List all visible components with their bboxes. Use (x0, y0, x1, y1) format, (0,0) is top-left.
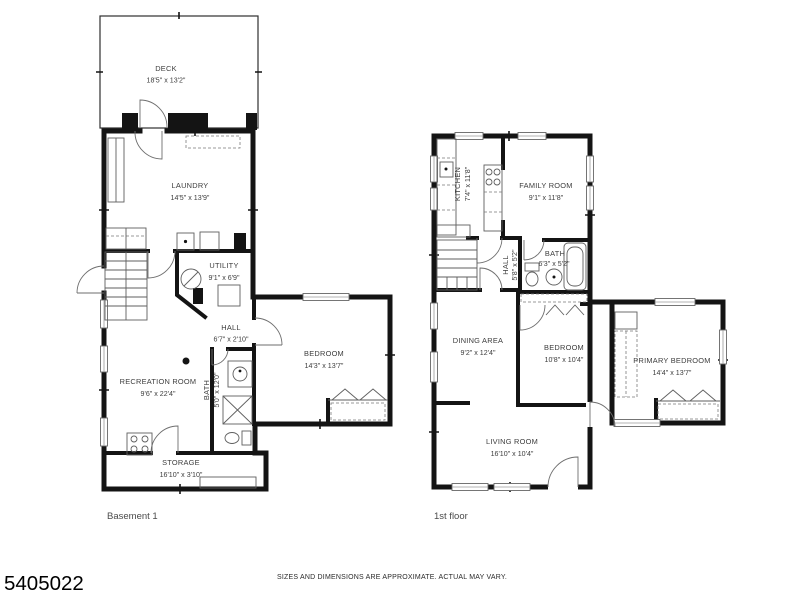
room-label-bath-first: BATH 6'3" x 5'2" (538, 249, 569, 268)
room-dims: 9'1" x 6'9" (208, 274, 239, 282)
washer-dryer-icon (106, 228, 146, 249)
room-dims: 9'2" x 12'4" (461, 349, 496, 357)
room-name: RECREATION ROOM (120, 377, 197, 386)
deck-outline (96, 12, 262, 130)
room-name: DINING AREA (453, 336, 503, 345)
bedroom-closet (521, 294, 587, 315)
basement-bedroom-closet (328, 389, 388, 420)
room-name: BATH (545, 249, 565, 258)
room-dims: 14'3" x 13'7" (305, 362, 344, 370)
primary-closets (615, 312, 720, 419)
room-label-bedroom-basement: BEDROOM 14'3" x 13'7" (304, 349, 344, 370)
room-label-kitchen: KITCHEN 7'4" x 11'8" (453, 166, 472, 201)
room-label-bedroom-first: BEDROOM 10'8" x 10'4" (544, 343, 584, 364)
room-dims: 6'7" x 2'10" (214, 336, 249, 344)
room-label-deck: DECK 18'5" x 13'2" (147, 64, 186, 85)
room-dims: 7'4" x 11'8" (464, 166, 472, 201)
room-name: BEDROOM (304, 349, 344, 358)
stairs-icon (105, 252, 147, 320)
kitchen-stove-icon (484, 165, 502, 231)
support-post-icon (183, 358, 190, 365)
room-dims: 14'4" x 13'7" (653, 369, 692, 377)
room-label-utility: UTILITY 9'1" x 6'9" (208, 261, 239, 282)
room-name: HALL (501, 255, 510, 275)
room-label-living: LIVING ROOM 16'10" x 10'4" (486, 437, 538, 458)
room-name: LAUNDRY (172, 181, 209, 190)
floorplan-page: DECK 18'5" x 13'2" LAUNDRY 14'5" x 13'9"… (0, 0, 800, 600)
room-dims: 6'3" x 5'2" (538, 260, 569, 268)
room-name: STORAGE (162, 458, 200, 467)
room-dims: 16'10" x 3'10" (160, 471, 203, 479)
basement-walls (99, 126, 395, 494)
first-floor-door-gaps (548, 402, 594, 491)
room-name: FAMILY ROOM (519, 181, 572, 190)
laundry-cabinet (108, 136, 240, 202)
room-dims: 9'1" x 11'8" (529, 194, 564, 202)
bath-sink-icon (546, 269, 562, 285)
room-label-recreation: RECREATION ROOM 9'6" x 22'4" (120, 377, 197, 398)
listing-id: 5405022 (4, 572, 84, 596)
room-name: UTILITY (209, 261, 238, 270)
room-dims: 10'8" x 10'4" (545, 356, 584, 364)
kitchen-sink-icon (440, 162, 453, 177)
room-label-primary: PRIMARY BEDROOM 14'4" x 13'7" (633, 356, 710, 377)
room-dims: 14'5" x 13'9" (171, 194, 210, 202)
room-name: HALL (221, 323, 241, 332)
basement-bath-fixtures (223, 361, 252, 445)
room-dims: 9'6" x 22'4" (141, 390, 176, 398)
floorplan-canvas: DECK 18'5" x 13'2" LAUNDRY 14'5" x 13'9"… (0, 0, 800, 600)
room-dims: 18'5" x 13'2" (147, 77, 186, 85)
bath-toilet-icon (525, 263, 539, 286)
room-name: LIVING ROOM (486, 437, 538, 446)
room-label-dining: DINING AREA 9'2" x 12'4" (453, 336, 503, 357)
room-dims: 5'0" x 12'0" (213, 372, 221, 407)
room-label-family: FAMILY ROOM 9'1" x 11'8" (519, 181, 572, 202)
first-floor-plan: KITCHEN 7'4" x 11'8" FAMILY ROOM 9'1" x … (429, 131, 728, 492)
room-label-laundry: LAUNDRY 14'5" x 13'9" (171, 181, 210, 202)
room-name: DECK (155, 64, 177, 73)
first-floor-windows (431, 133, 727, 491)
laundry-sink-icon (177, 232, 219, 250)
room-label-hall-basement: HALL 6'7" x 2'10" (214, 323, 249, 344)
disclaimer-text: SIZES AND DIMENSIONS ARE APPROXIMATE. AC… (0, 574, 784, 581)
room-name: BATH (202, 380, 211, 400)
room-name: PRIMARY BEDROOM (633, 356, 710, 365)
first-floor-label: 1st floor (434, 511, 468, 522)
room-label-hall-first: HALL 5'8" x 5'2" (501, 249, 519, 280)
storage-shelf (200, 477, 256, 488)
stairs-up-icon (437, 240, 477, 290)
basement-floor-label: Basement 1 (107, 511, 158, 522)
room-dims: 5'8" x 5'2" (511, 249, 519, 280)
basement-plan: DECK 18'5" x 13'2" LAUNDRY 14'5" x 13'9"… (77, 12, 395, 494)
room-dims: 16'10" x 10'4" (491, 450, 534, 458)
room-name: KITCHEN (453, 167, 462, 201)
room-label-storage: STORAGE 16'10" x 3'10" (160, 458, 203, 479)
room-name: BEDROOM (544, 343, 584, 352)
first-floor-walls (429, 131, 728, 492)
